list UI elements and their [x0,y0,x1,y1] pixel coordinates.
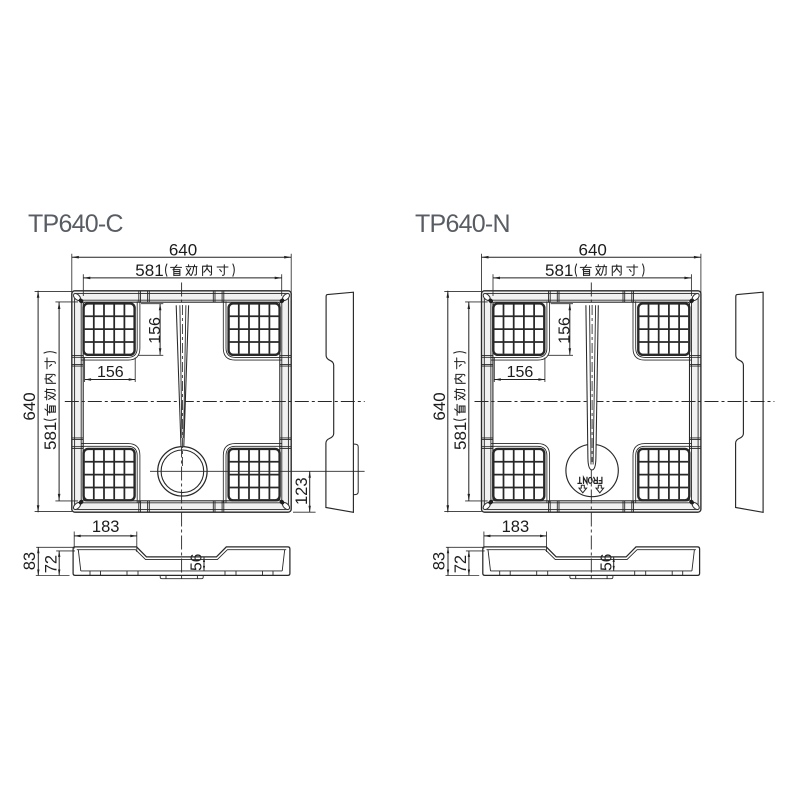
svg-text:156: 156 [147,317,164,344]
svg-text:640: 640 [169,240,197,259]
svg-text:156: 156 [97,364,124,381]
svg-text:TP640-N: TP640-N [415,210,510,238]
svg-text:83: 83 [21,552,39,570]
svg-text:123: 123 [293,477,311,505]
svg-text:183: 183 [92,518,120,536]
svg-text:581: 581 [135,261,163,280]
svg-text:TP640-C: TP640-C [28,210,123,238]
svg-text:56: 56 [189,554,206,571]
svg-text:581: 581 [41,422,60,450]
svg-text:640: 640 [20,392,39,420]
svg-text:72: 72 [42,555,60,573]
